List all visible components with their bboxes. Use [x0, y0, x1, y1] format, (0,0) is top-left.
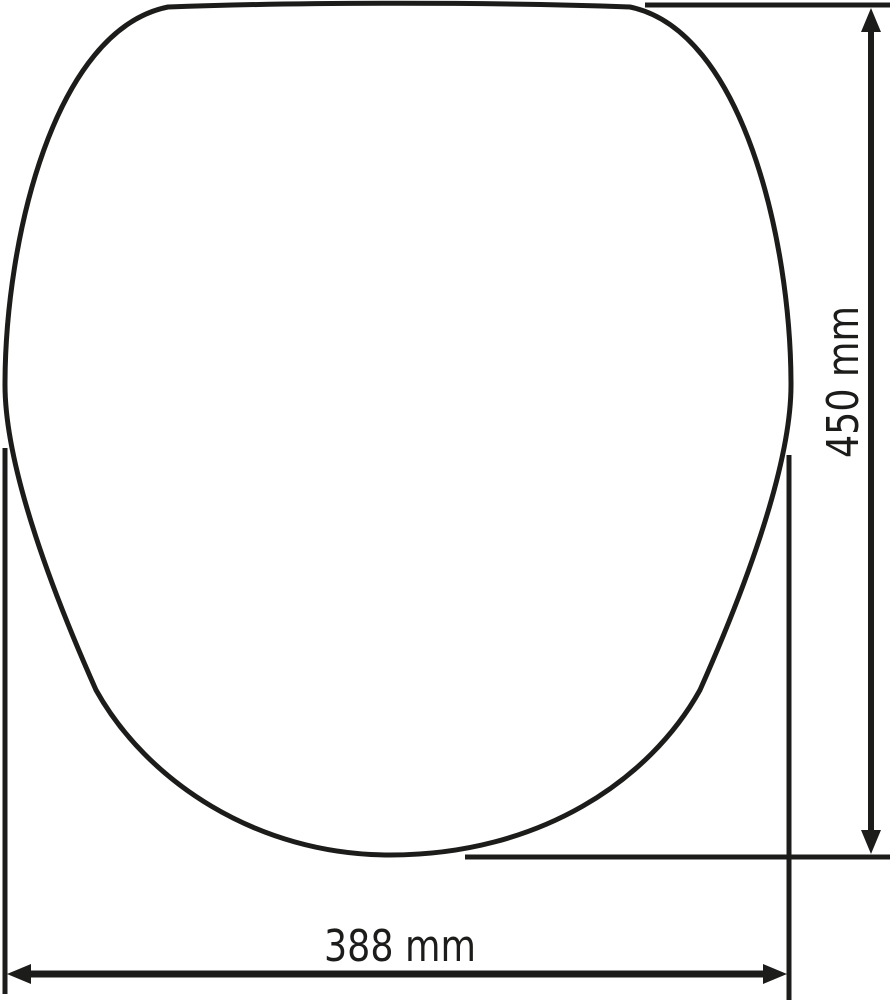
- left-arrowhead-icon: [7, 964, 31, 984]
- up-arrowhead-icon: [861, 8, 881, 32]
- diagram-canvas: 450 mm 388 mm: [0, 0, 890, 1000]
- dimension-diagram: 450 mm 388 mm: [0, 0, 890, 1000]
- width-dimension: 388 mm: [5, 448, 789, 1000]
- down-arrowhead-icon: [861, 830, 881, 854]
- height-dimension: 450 mm: [465, 5, 890, 857]
- width-dimension-label: 388 mm: [324, 921, 476, 972]
- seat-lid-outline: [5, 3, 791, 855]
- right-arrowhead-icon: [763, 964, 787, 984]
- height-dimension-label: 450 mm: [818, 306, 869, 458]
